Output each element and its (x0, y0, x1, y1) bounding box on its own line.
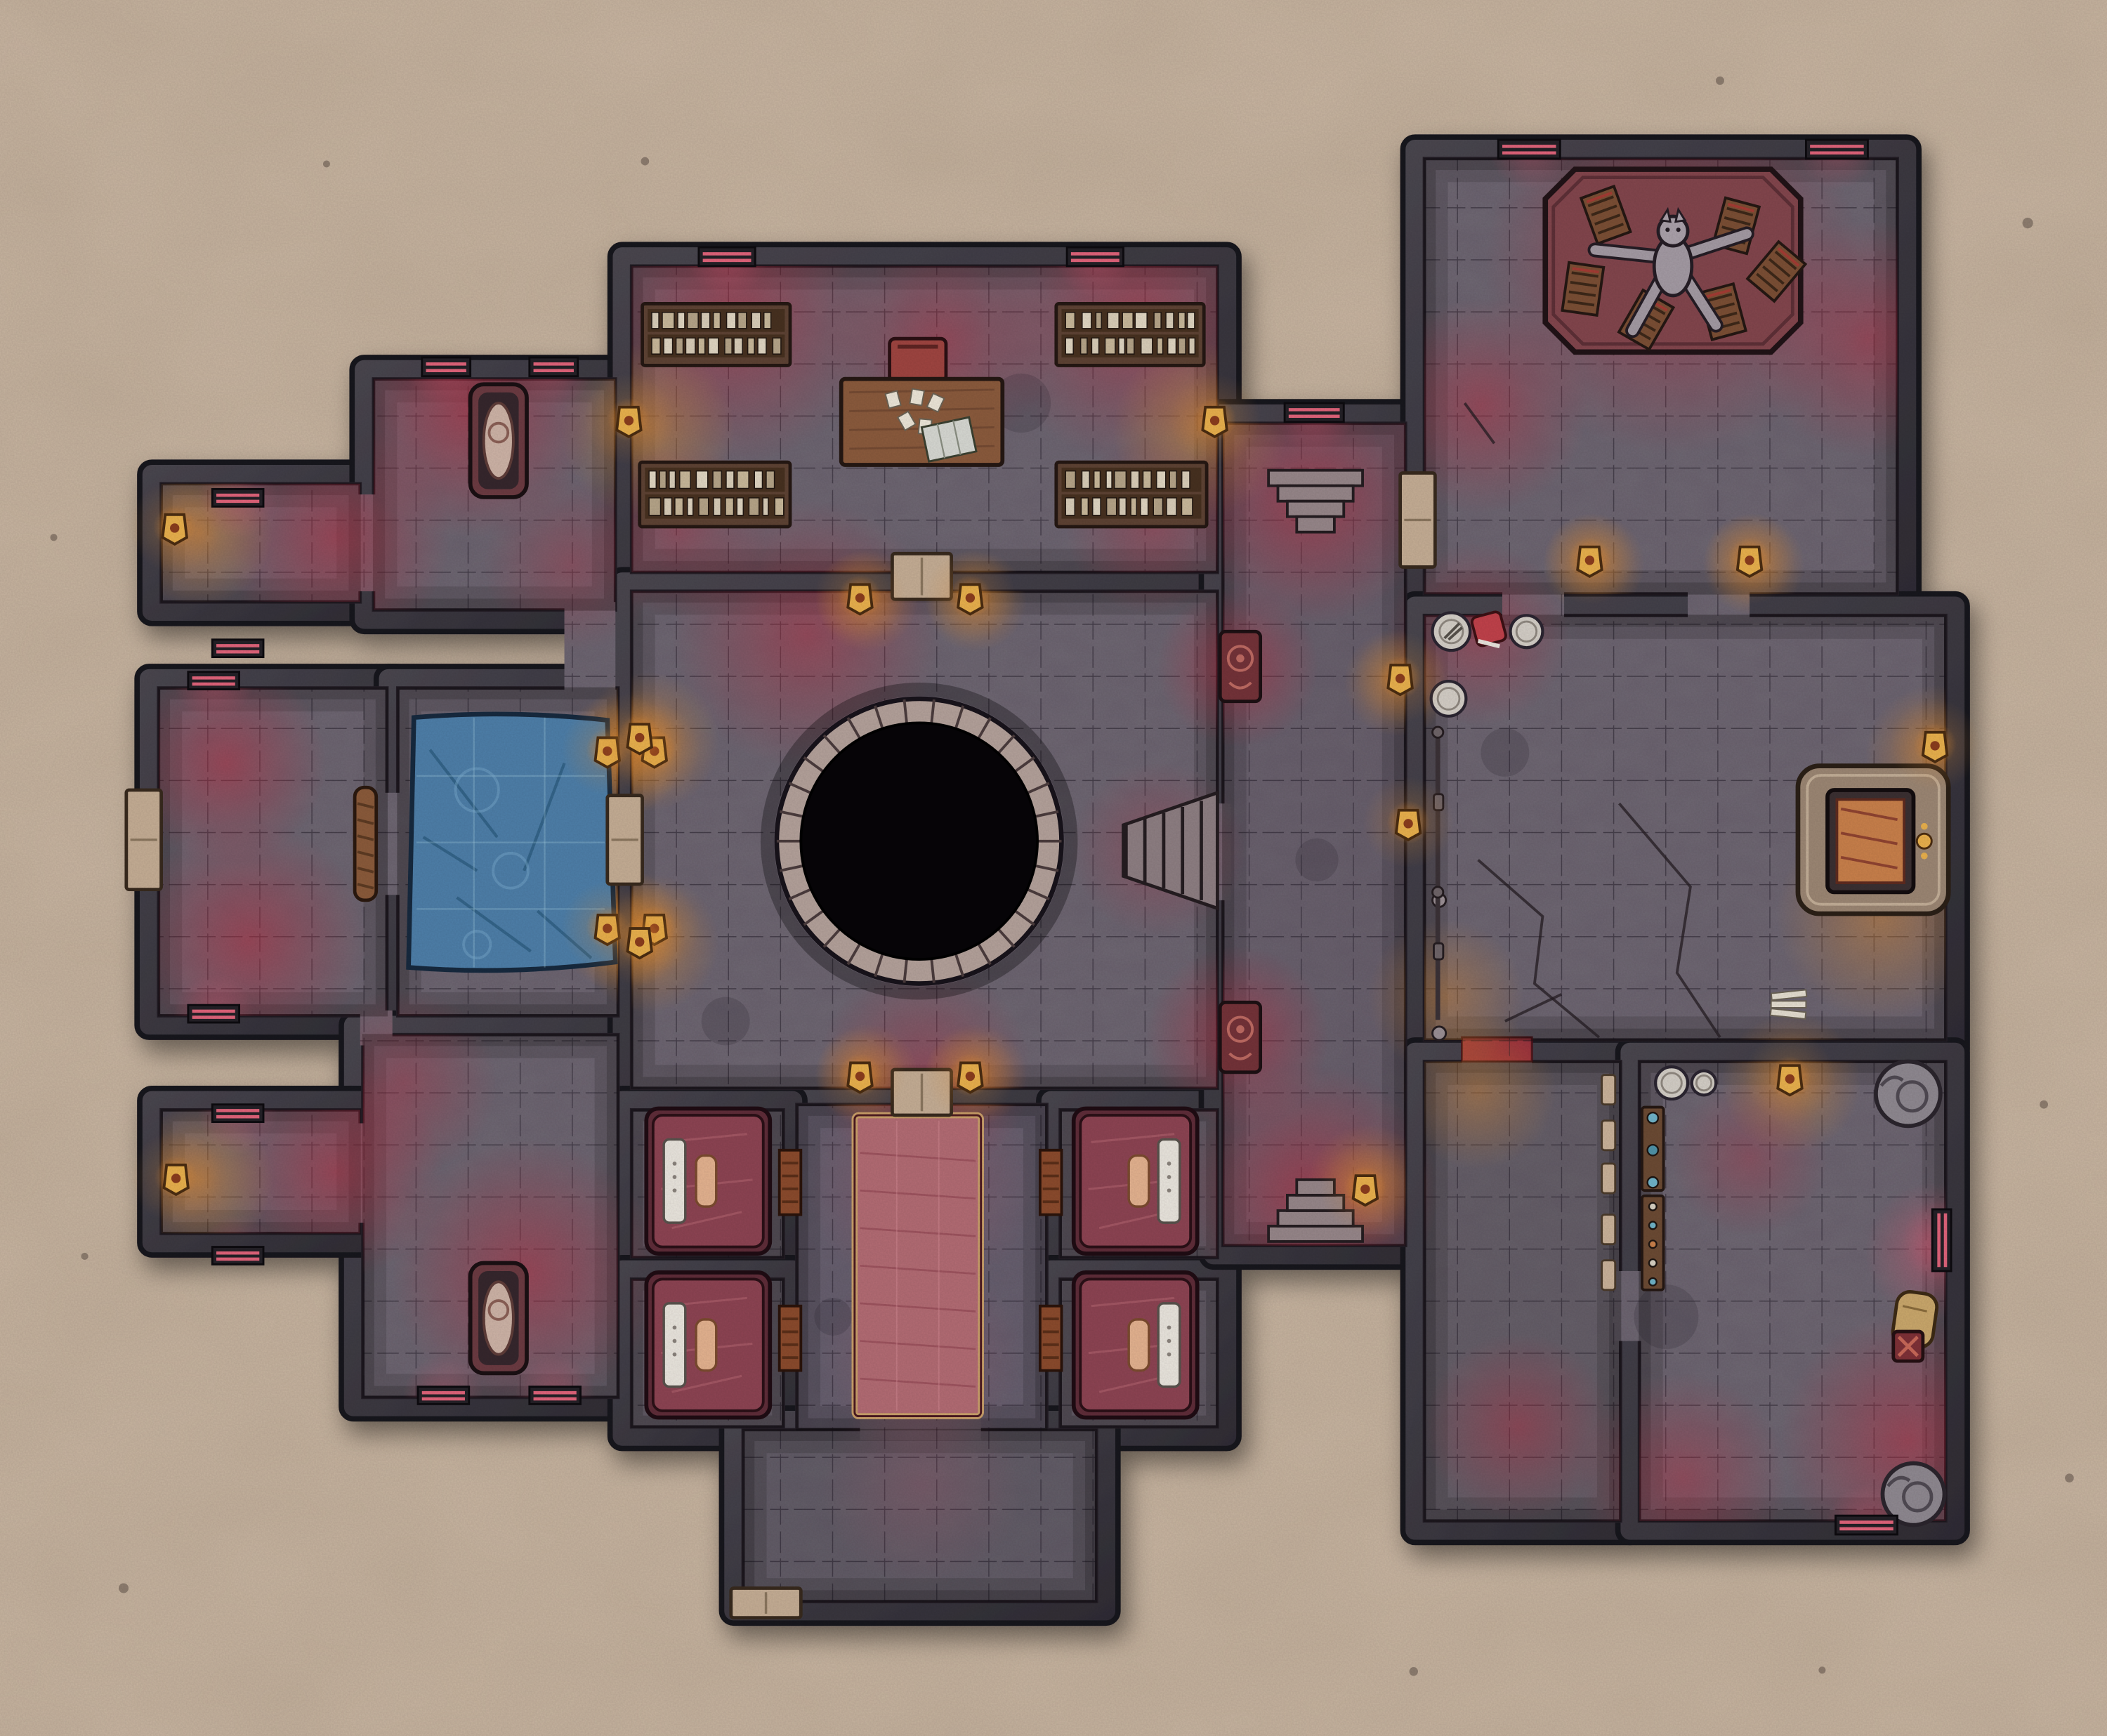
dungeon-map-canvas (0, 0, 2107, 1736)
grain-overlay (0, 0, 2107, 1736)
battle-map (0, 0, 2107, 1736)
